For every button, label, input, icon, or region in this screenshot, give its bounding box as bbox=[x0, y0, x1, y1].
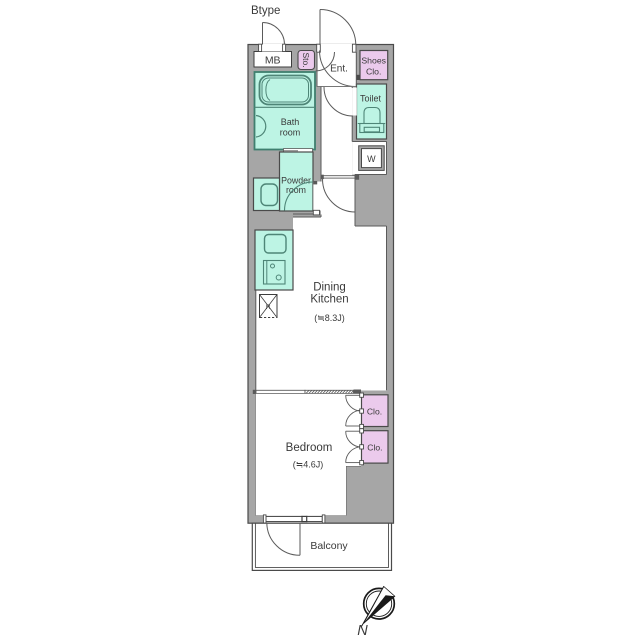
svg-text:Toilet: Toilet bbox=[360, 94, 382, 104]
svg-text:Bath: Bath bbox=[281, 117, 300, 127]
svg-text:Sto.: Sto. bbox=[301, 52, 311, 67]
svg-text:W: W bbox=[367, 154, 376, 164]
svg-text:Btype: Btype bbox=[251, 5, 280, 17]
svg-text:Bedroom: Bedroom bbox=[286, 442, 333, 454]
svg-text:Clo.: Clo. bbox=[366, 66, 381, 76]
svg-text:N: N bbox=[357, 623, 368, 639]
svg-text:(≒4.6J): (≒4.6J) bbox=[293, 460, 324, 470]
svg-text:Clo.: Clo. bbox=[367, 442, 382, 452]
svg-text:R: R bbox=[266, 304, 271, 311]
svg-text:Dining: Dining bbox=[313, 282, 346, 294]
svg-text:room: room bbox=[280, 127, 301, 137]
svg-text:Balcony: Balcony bbox=[310, 540, 348, 552]
svg-text:MB: MB bbox=[265, 55, 281, 67]
svg-text:Kitchen: Kitchen bbox=[310, 294, 348, 306]
svg-text:Shoes: Shoes bbox=[361, 56, 386, 66]
svg-text:Clo.: Clo. bbox=[367, 406, 382, 416]
svg-text:Ent.: Ent. bbox=[330, 64, 348, 75]
svg-text:(≒8.3J): (≒8.3J) bbox=[314, 313, 345, 323]
svg-text:room: room bbox=[286, 185, 306, 195]
